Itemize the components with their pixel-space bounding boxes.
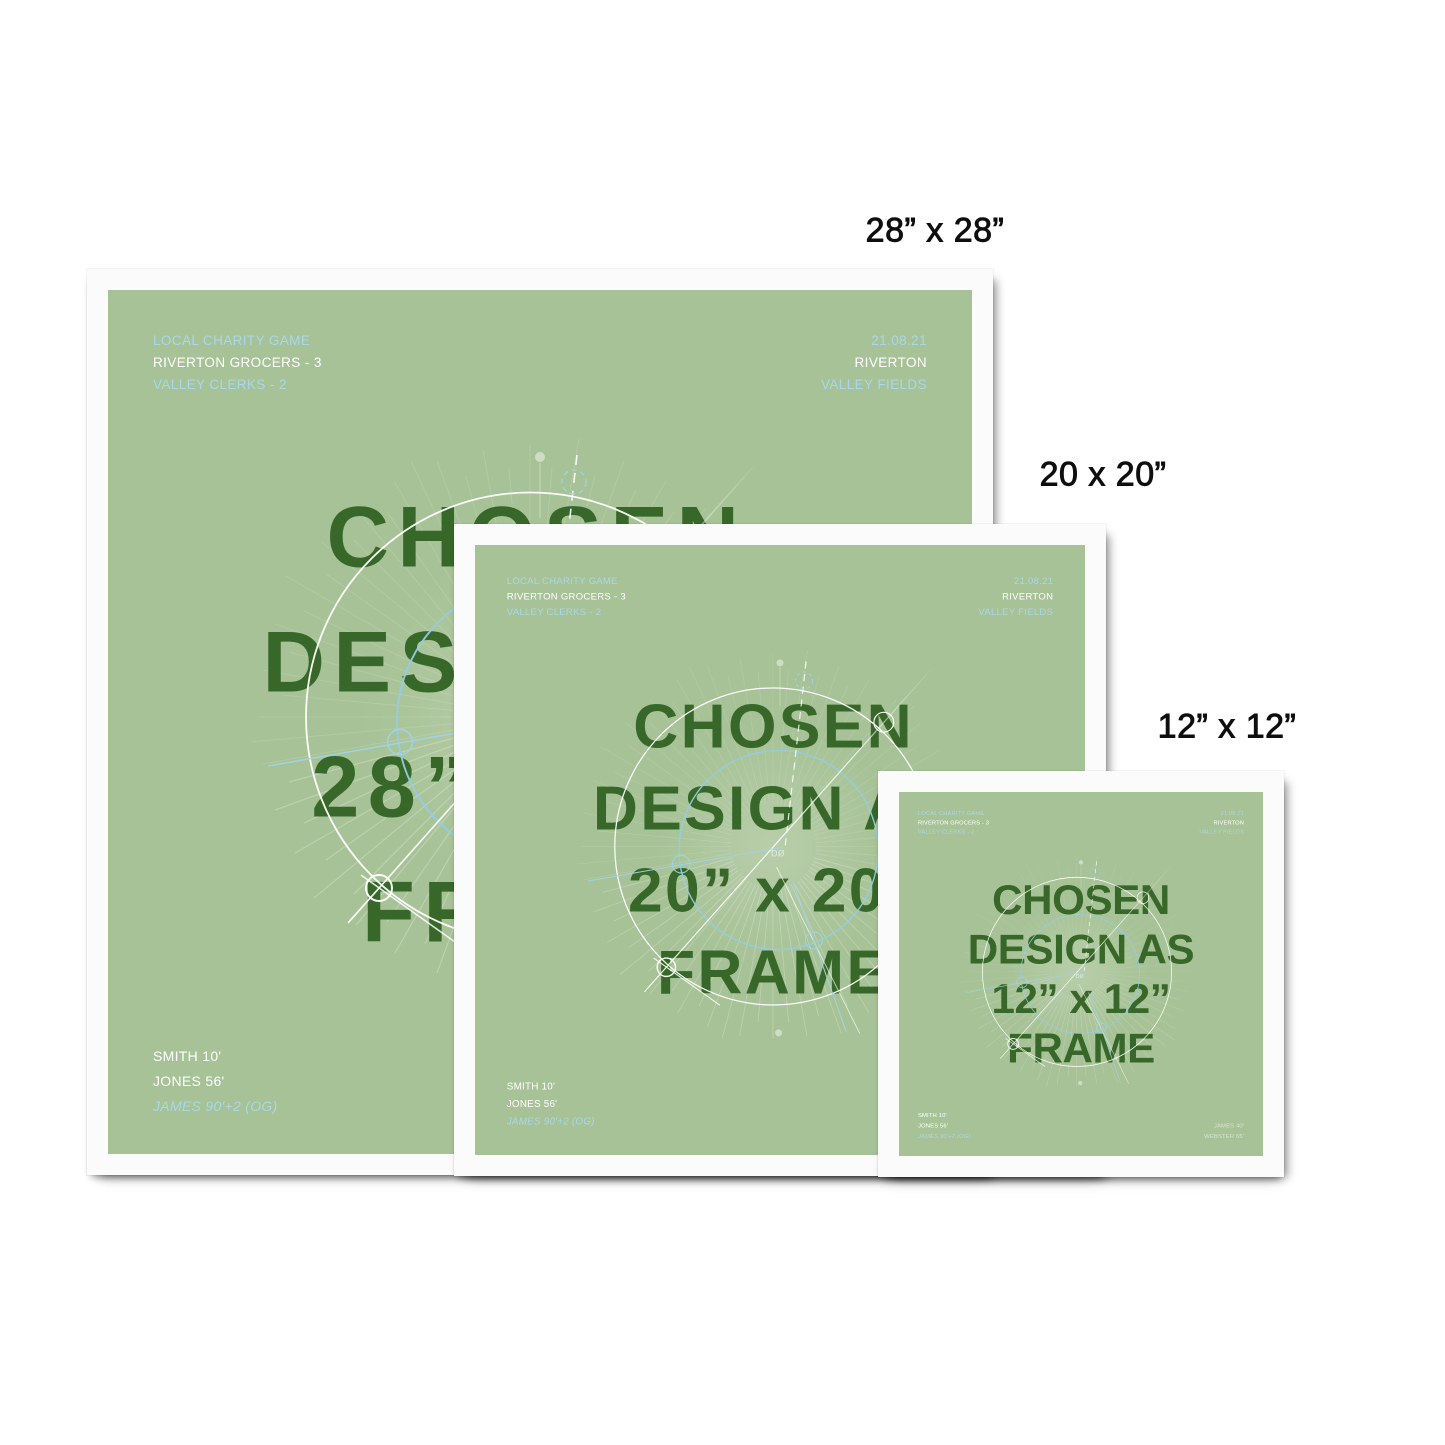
svg-text:bø: bø: [771, 845, 786, 859]
svg-text:bø: bø: [1076, 972, 1085, 980]
